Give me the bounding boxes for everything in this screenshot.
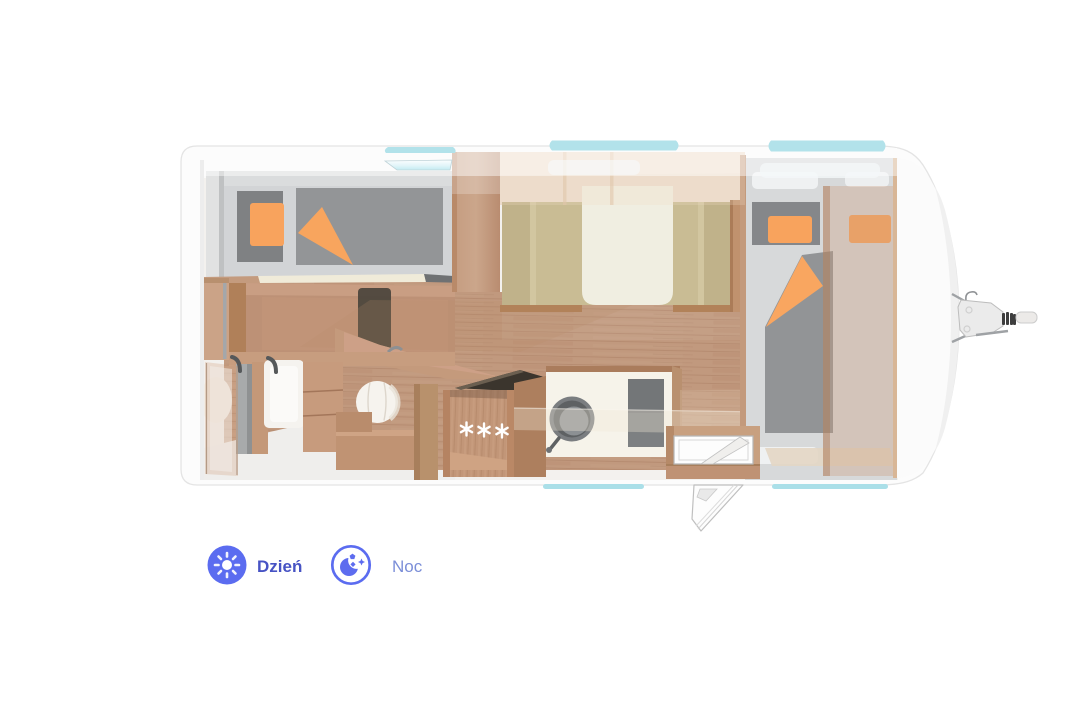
svg-text:Dzień: Dzień	[257, 557, 302, 576]
svg-text:Noc: Noc	[392, 557, 423, 576]
